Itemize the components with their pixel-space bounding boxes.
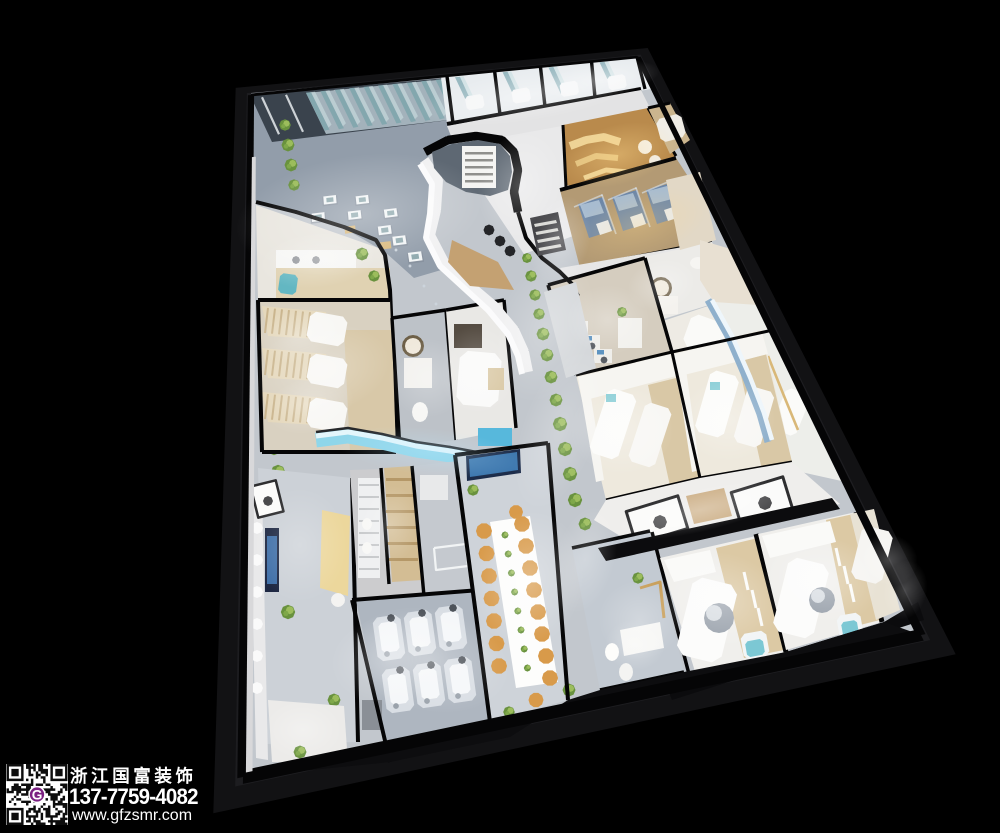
svg-text:G: G (32, 787, 43, 802)
